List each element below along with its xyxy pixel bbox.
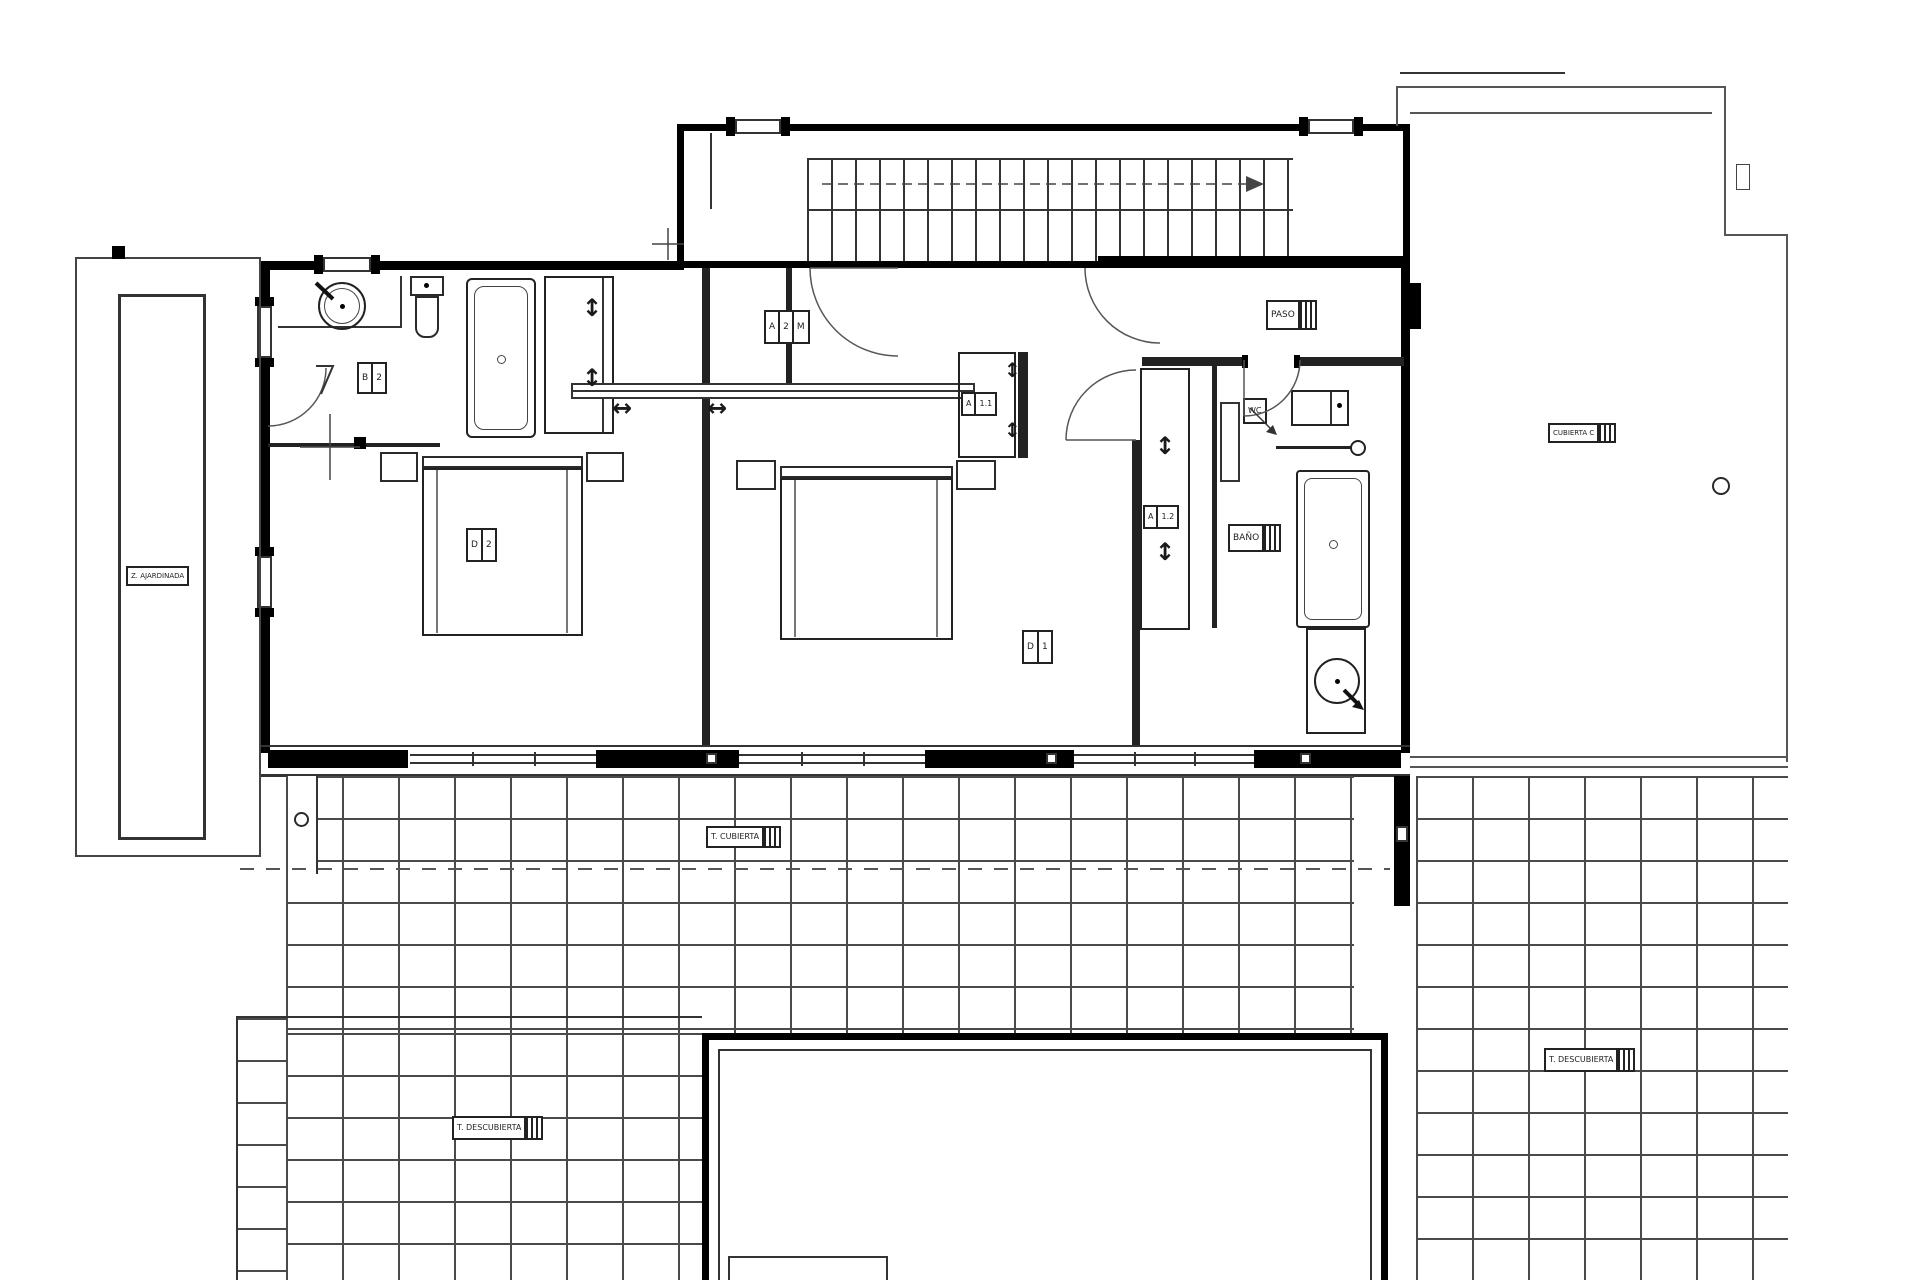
label-bathroom2: B 2	[357, 362, 387, 394]
window-glazing	[1074, 754, 1254, 756]
label-terrace-covered-area	[762, 828, 779, 846]
label-terrace-open-left-area	[524, 1118, 541, 1138]
terrace-outline-right	[1786, 234, 1788, 762]
toilet-right-divider	[1330, 392, 1332, 424]
window-glazing	[739, 754, 925, 756]
wall-b2-d2-pier	[354, 437, 366, 449]
sliding-arrow-vertical: ↕	[582, 364, 602, 392]
towel-ladder	[1220, 402, 1240, 482]
courtyard-inner-line	[718, 1049, 1372, 1280]
bed-d2-headboard	[422, 456, 583, 468]
door-jamb	[1242, 355, 1248, 368]
bed-d1-fold	[936, 480, 938, 637]
label-bedroom2: D 2	[466, 528, 497, 562]
door-arc	[810, 268, 898, 356]
door-pier-right-wall	[1404, 283, 1421, 329]
label-closet12: A 1.2	[1143, 505, 1179, 529]
label-bath: BAÑO	[1228, 524, 1281, 552]
window-mullion	[472, 752, 474, 766]
courtyard-stair-detail	[728, 1256, 888, 1280]
label-hall-c1: A	[766, 312, 778, 342]
window-band-top	[261, 745, 1410, 747]
wall-chunk	[268, 750, 408, 768]
sliding-arrow-horizontal: ↔	[612, 394, 632, 422]
wall-pier	[323, 257, 371, 272]
label-bedroom2-num: 2	[481, 530, 495, 560]
stair-landing-wall	[710, 133, 712, 209]
label-terrace-covered: T. CUBIERTA	[706, 826, 781, 848]
door-arc	[1085, 268, 1160, 343]
label-closet12-num: 1.2	[1156, 507, 1177, 527]
label-bath-text: BAÑO	[1230, 526, 1262, 550]
terrace-outline-step	[1724, 234, 1788, 236]
tiled-roof-left-ext	[236, 1018, 286, 1280]
window-glazing	[739, 762, 925, 764]
sliding-arrow-horizontal: ↔	[707, 394, 727, 422]
wall-chunk	[596, 750, 739, 768]
window-mullion	[1194, 752, 1196, 766]
label-closet11-num: 1.1	[974, 394, 995, 414]
terrace-bottom-line-1	[1410, 756, 1788, 758]
label-wc-text: WC	[1245, 400, 1265, 422]
label-roof-c: CUBIERTA C	[1548, 423, 1616, 443]
bathtub-drain	[497, 355, 506, 364]
tiled-roof-lower-left	[286, 1033, 702, 1280]
window-glazing	[410, 754, 596, 756]
label-roof-c-text: CUBIERTA C	[1550, 425, 1597, 441]
window-mullion	[534, 752, 536, 766]
label-terrace-open-right-text: T. DESCUBIERTA	[1546, 1050, 1616, 1070]
shower-drain-dot	[340, 304, 345, 309]
wall-chunk-mark	[1300, 753, 1311, 764]
bed-d2-fold	[436, 470, 438, 633]
roof-boundary-h	[236, 1016, 702, 1018]
label-garden: Z. AJARDINADA	[126, 566, 189, 586]
roof-drain	[1712, 477, 1730, 495]
door-jamb	[1294, 355, 1300, 368]
bed-d2	[422, 468, 583, 636]
window-glazing	[1074, 762, 1254, 764]
label-terrace-open-right-area	[1616, 1050, 1633, 1070]
wall-left-suite	[702, 268, 710, 745]
pier-cap	[1354, 117, 1363, 136]
terrace-outline-left	[1396, 86, 1398, 126]
toilet-button	[424, 283, 429, 288]
tiled-roof-right	[1416, 776, 1788, 1280]
label-paso-text: PASO	[1268, 302, 1298, 328]
sliding-arrow-vertical: ↕	[1004, 358, 1021, 382]
bed-d1	[780, 478, 953, 640]
label-terrace-open-left-text: T. DESCUBIERTA	[454, 1118, 524, 1138]
gutter-drain	[294, 812, 309, 827]
wall-bath-mid	[1212, 366, 1217, 628]
sliding-arrow-vertical: ↕	[1004, 418, 1021, 442]
label-bedroom1-code: D	[1024, 632, 1037, 662]
label-bathroom2-num: 2	[371, 364, 385, 392]
cross-mark	[300, 414, 360, 480]
nightstand	[586, 452, 624, 482]
label-bedroom2-code: D	[468, 530, 481, 560]
wall-pier	[1308, 119, 1354, 134]
roof-boundary-v	[236, 1016, 238, 1280]
eave-line	[1400, 72, 1565, 74]
wardrobe-b2-door-line	[602, 278, 604, 432]
label-closet12-code: A	[1145, 507, 1156, 527]
nightstand	[956, 460, 996, 490]
nightstand	[380, 452, 418, 482]
pier-cap	[314, 255, 323, 274]
terrace-outline-top-outer	[1396, 86, 1726, 88]
toilet-right-button	[1337, 403, 1342, 408]
label-wc: WC	[1243, 398, 1267, 424]
door-arc	[1066, 370, 1136, 440]
toilet-right	[1291, 390, 1349, 426]
bathtub-right-drain	[1329, 540, 1338, 549]
bed-d1-fold	[794, 480, 796, 637]
label-garden-text: Z. AJARDINADA	[128, 568, 187, 584]
terrace-latch	[1736, 164, 1750, 190]
label-paso-area	[1298, 302, 1315, 328]
terrace-bottom-line-2	[1410, 766, 1788, 768]
wall-chunk-mark	[1046, 753, 1057, 764]
label-hall-code: A 2 M	[764, 310, 810, 344]
wall-right-suite-top-a	[1142, 357, 1242, 366]
exterior-wall-right	[1401, 261, 1410, 753]
window-glazing	[410, 762, 596, 764]
bed-d2-fold	[566, 470, 568, 633]
label-closet11-code: A	[963, 394, 974, 414]
closet-band-mid	[573, 390, 973, 392]
wall-chunk	[1254, 750, 1401, 768]
shower-screen-knob	[1350, 440, 1366, 456]
roof-wall-mark	[1396, 826, 1408, 842]
pier-cap	[371, 255, 380, 274]
label-bathroom2-code: B	[359, 364, 371, 392]
label-closet11: A 1.1	[961, 392, 997, 416]
pier-cap	[1299, 117, 1308, 136]
planter-pier	[112, 246, 125, 259]
door-arc	[268, 368, 326, 426]
label-bedroom1-num: 1	[1037, 632, 1051, 662]
sliding-arrow-vertical: ↕	[582, 294, 602, 322]
bed-d1-headboard	[780, 466, 953, 478]
terrace-outline-top-inner	[1410, 112, 1712, 114]
label-bath-area	[1262, 526, 1279, 550]
shower-2-drain-dot	[1335, 679, 1340, 684]
floor-plan: Z. AJARDINADA CUBIERTA C T. CUBIERTA T. …	[0, 0, 1920, 1280]
bathtub-right-inner	[1304, 478, 1362, 620]
label-hall-c3: M	[792, 312, 808, 342]
pier-cap	[726, 117, 735, 136]
roof-axis-dashed-line	[240, 868, 1390, 870]
toilet-bowl	[415, 296, 439, 338]
sliding-arrow-vertical: ↕	[1155, 432, 1175, 460]
sliding-arrow-vertical: ↕	[1155, 538, 1175, 566]
label-terrace-open-right: T. DESCUBIERTA	[1544, 1048, 1635, 1072]
label-terrace-covered-text: T. CUBIERTA	[708, 828, 762, 846]
door-leaf-seven	[316, 366, 333, 394]
wall-right-suite-top-b	[1300, 357, 1404, 366]
window-mullion	[863, 752, 865, 766]
closet-a12	[1140, 368, 1190, 630]
label-bedroom1: D 1	[1022, 630, 1053, 664]
pier-cap	[781, 117, 790, 136]
wall-d1-right	[1132, 440, 1140, 745]
wc-arrowhead	[1266, 425, 1277, 435]
wall-pier	[735, 119, 781, 134]
shower-screen	[1276, 446, 1354, 449]
wall-chunk-mark	[706, 753, 717, 764]
terrace-outline-right-upper	[1724, 86, 1726, 236]
window-mullion	[1134, 752, 1136, 766]
label-paso: PASO	[1266, 300, 1317, 330]
label-hall-c2: 2	[778, 312, 792, 342]
nightstand	[736, 460, 776, 490]
label-terrace-open-left: T. DESCUBIERTA	[452, 1116, 543, 1140]
window-mullion	[801, 752, 803, 766]
label-roof-c-area	[1597, 425, 1614, 441]
tiled-roof-main	[286, 776, 1354, 1033]
stair-landing-edge	[1098, 256, 1404, 265]
stair-mid-line	[807, 209, 1293, 211]
